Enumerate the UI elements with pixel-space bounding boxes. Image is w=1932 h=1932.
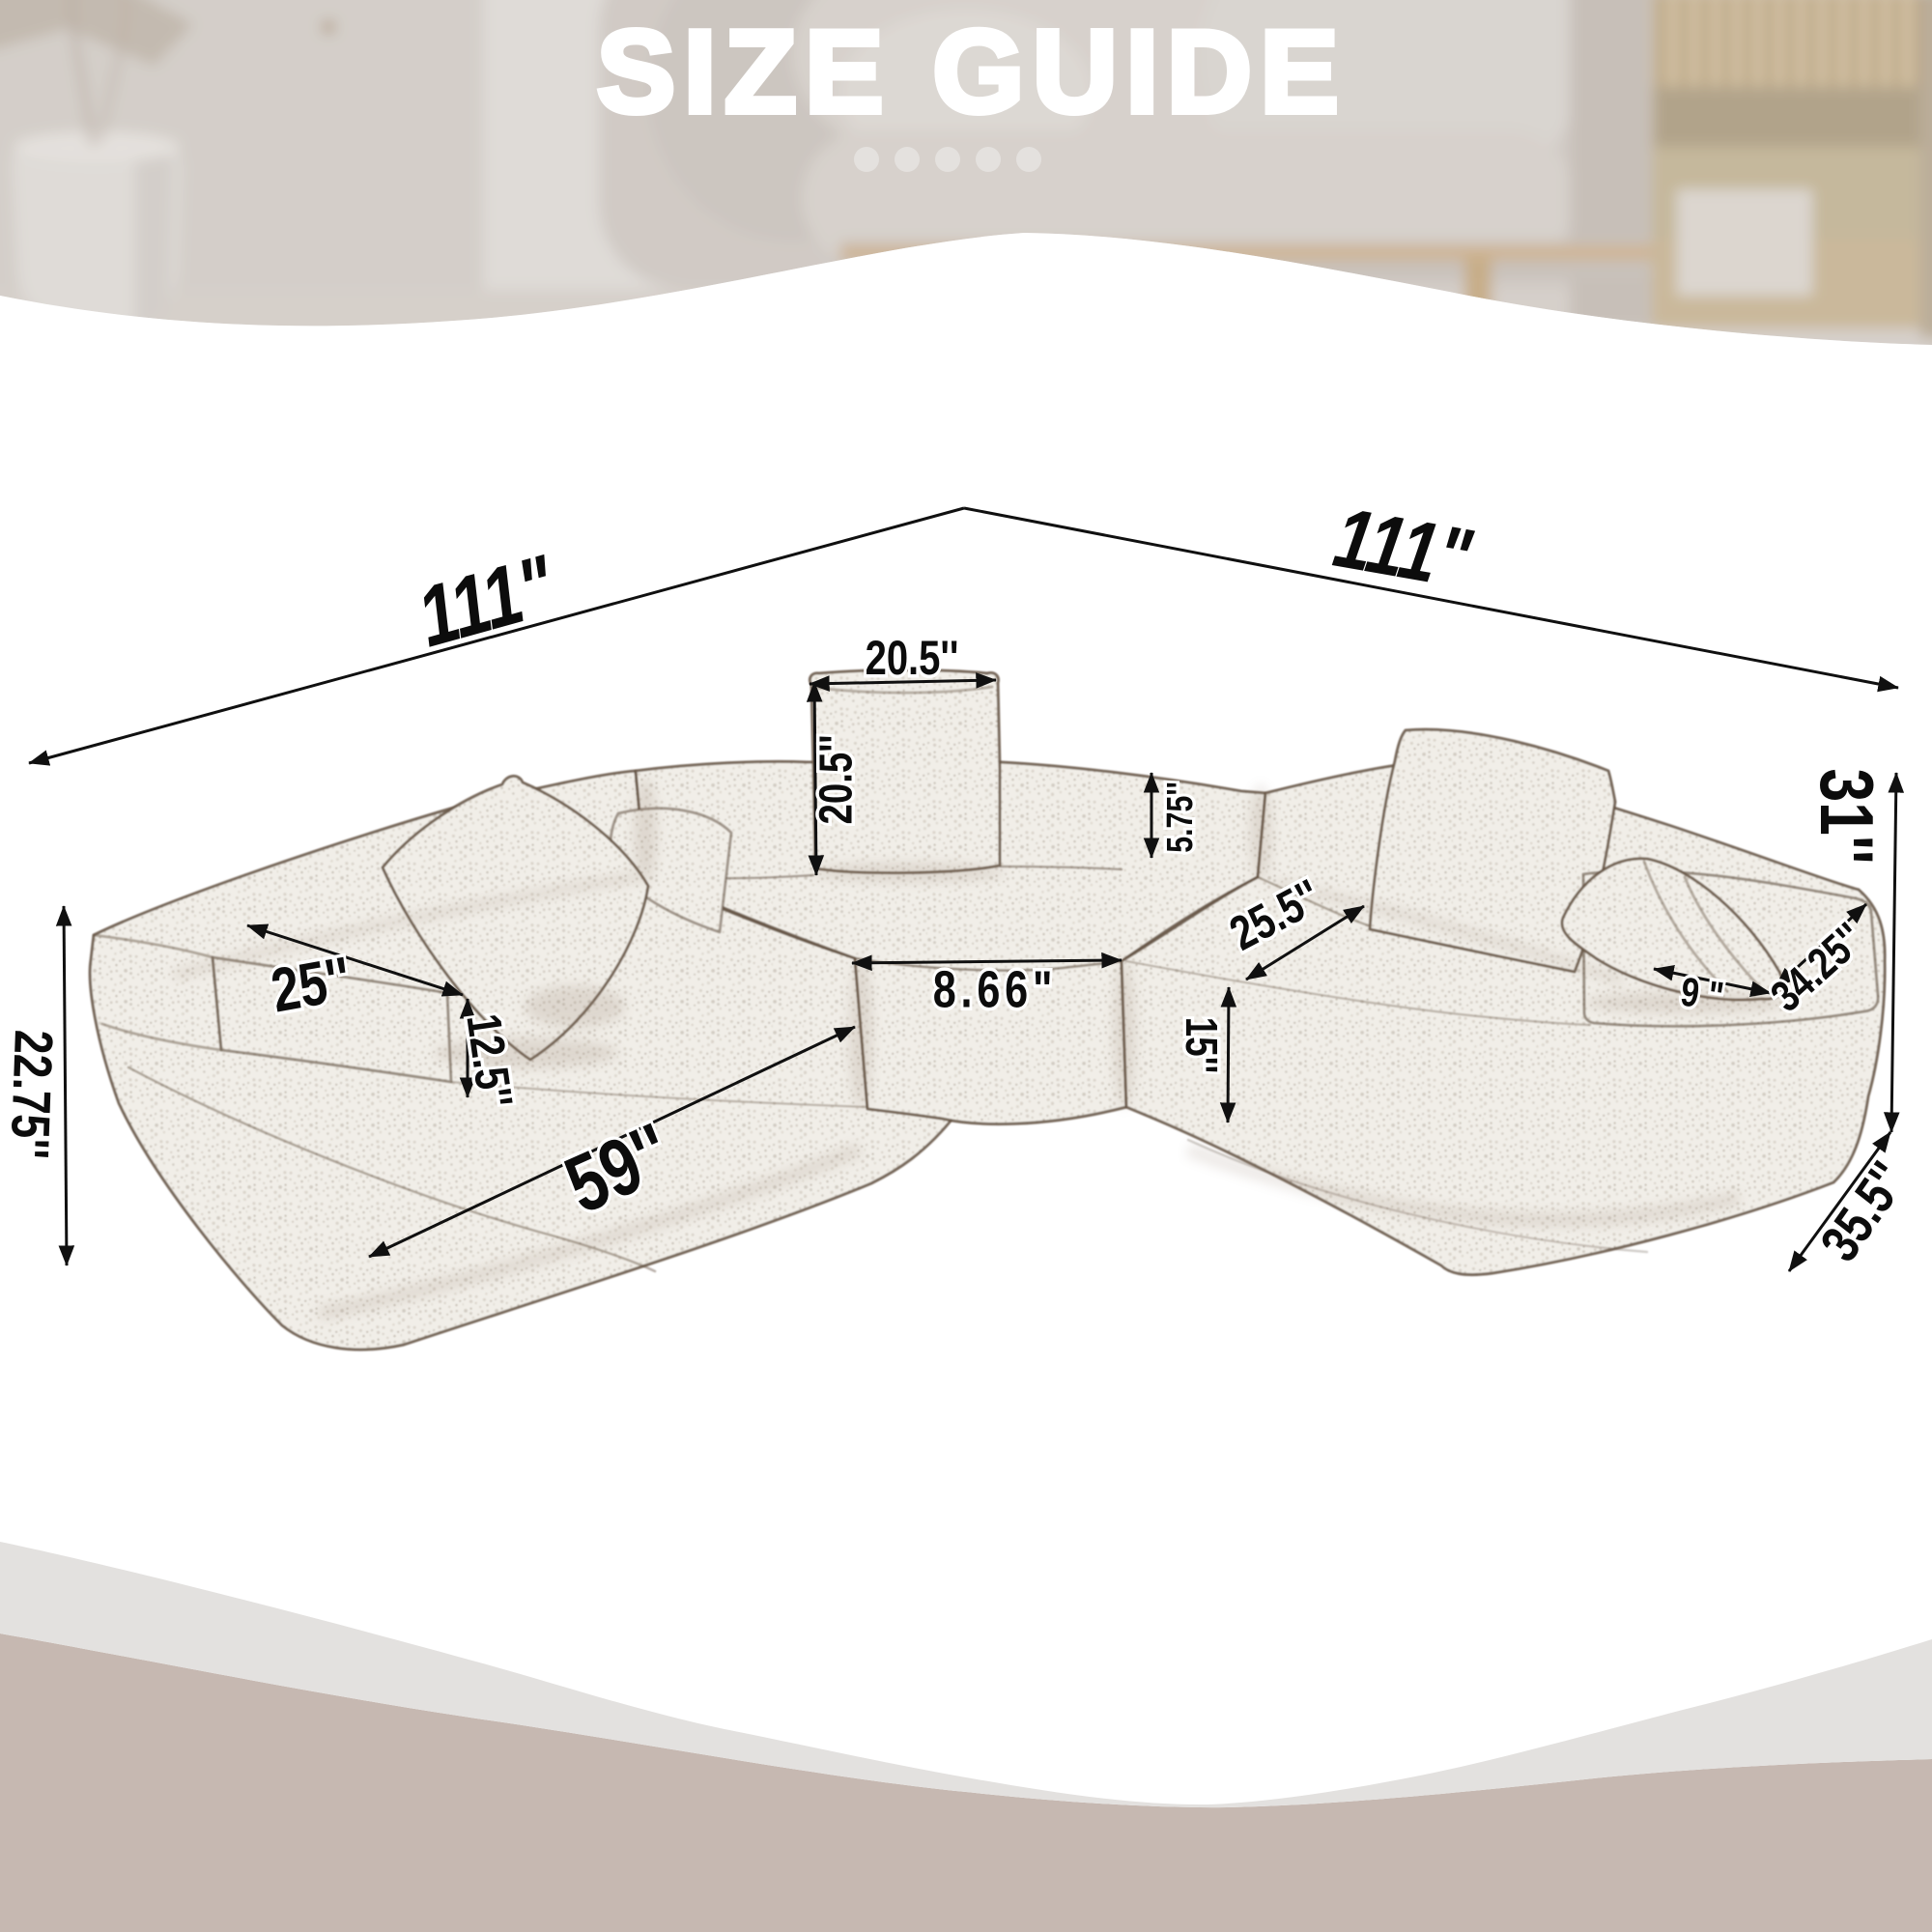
svg-text:9 ": 9 "	[1678, 970, 1726, 1020]
svg-text:5.75'': 5.75''	[1160, 781, 1201, 853]
svg-text:15'': 15''	[1177, 1017, 1227, 1073]
svg-text:20.5'': 20.5''	[810, 735, 862, 825]
svg-text:22.75'': 22.75''	[0, 1029, 65, 1160]
svg-text:25'': 25''	[267, 945, 355, 1026]
svg-text:20.5'': 20.5''	[866, 631, 959, 685]
svg-text:8.66": 8.66"	[933, 961, 1058, 1019]
svg-text:SIZE GUIDE: SIZE GUIDE	[597, 6, 1347, 137]
svg-text:31'': 31''	[1804, 768, 1889, 864]
